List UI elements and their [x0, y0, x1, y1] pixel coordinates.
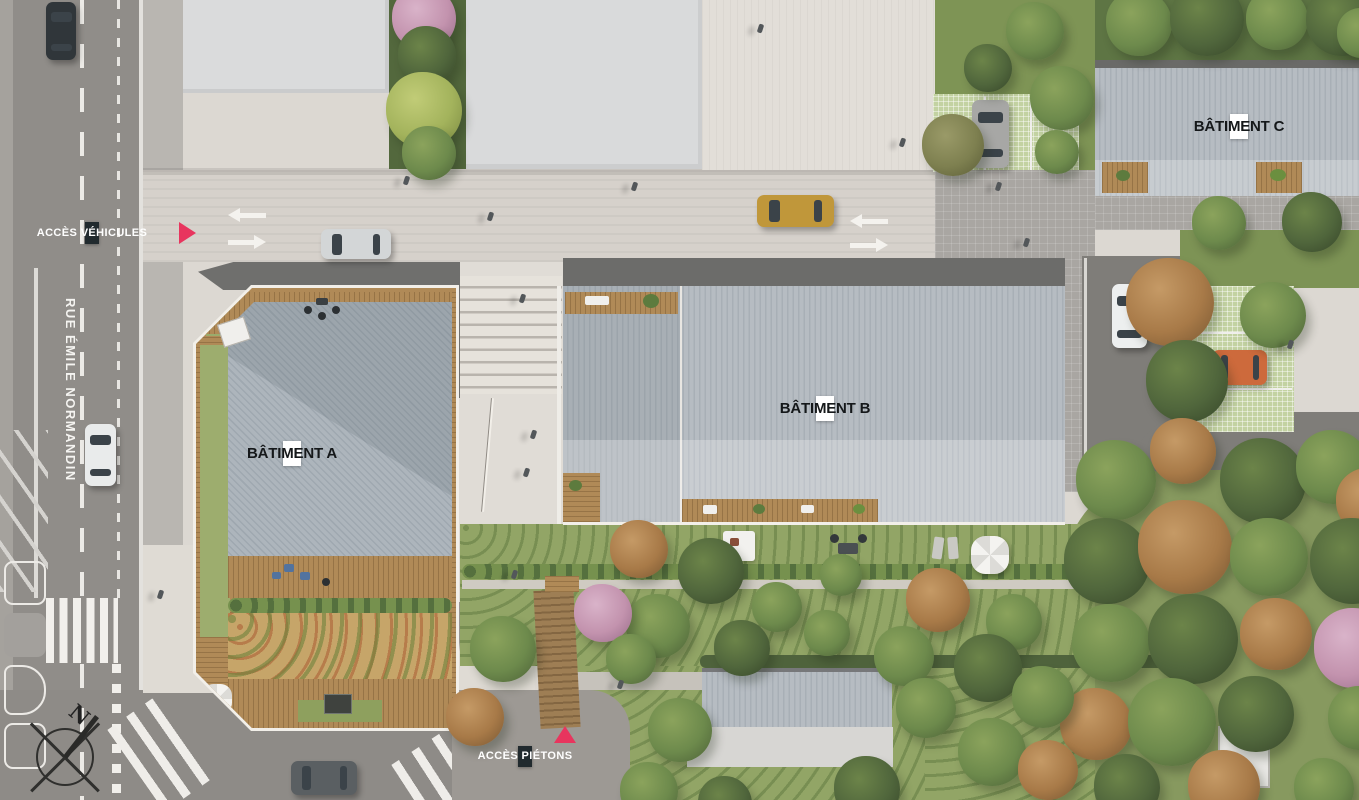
building-b-edge-line: [557, 286, 561, 524]
existing-building-nw: [183, 0, 389, 93]
terrace-plant: [853, 504, 865, 514]
access-pedestrians-label: ACCÈS PIÉTONS: [518, 746, 532, 767]
tree: [1240, 598, 1312, 670]
car-rear-window: [373, 234, 381, 255]
lane-arrow-left: [862, 219, 888, 224]
car: [757, 195, 834, 227]
lane-line-dashed-fine: [117, 0, 120, 598]
car-windshield: [978, 112, 1004, 123]
car-windshield: [332, 234, 342, 255]
tree: [1064, 518, 1150, 604]
tree: [922, 114, 984, 176]
tree: [1218, 676, 1294, 752]
building-b-label: BÂTIMENT B: [816, 396, 834, 421]
lane-arrow-right: [228, 240, 254, 245]
tree: [1072, 604, 1150, 682]
tree: [896, 678, 956, 738]
access-vehicles-arrow-icon: [179, 222, 196, 244]
tree: [874, 626, 934, 686]
tree: [1076, 440, 1156, 520]
parking-bay: [4, 561, 46, 605]
building-c-terrace-plant: [1270, 169, 1286, 181]
building-b-eave: [563, 258, 1065, 286]
tree: [648, 698, 712, 762]
building-a-label: BÂTIMENT A: [283, 441, 301, 466]
car-windshield: [302, 766, 311, 790]
tree: [820, 554, 862, 596]
curb-line-east: [1084, 258, 1087, 470]
tree: [906, 568, 970, 632]
tree: [678, 538, 744, 604]
boardwalk-landing: [545, 576, 579, 592]
compass: N: [0, 680, 130, 800]
tree: [574, 584, 632, 642]
car: [321, 229, 391, 259]
lane-arrow-left: [240, 213, 266, 218]
garden-chair: [858, 534, 867, 543]
terrace-deck-low: [228, 556, 452, 598]
terrace-lawn: [200, 345, 230, 637]
tree: [1128, 678, 1216, 766]
tree: [1006, 2, 1064, 60]
garden-table: [838, 543, 858, 554]
access-vehicles-label: ACCÈS VÉHICULES: [85, 222, 99, 244]
building-b-terrace: [565, 292, 678, 314]
garden-chair: [830, 534, 839, 543]
tree: [1012, 666, 1074, 728]
roof-chair: [332, 306, 340, 314]
car-rear-window: [51, 44, 72, 51]
building-a: [196, 288, 456, 728]
car-windshield: [90, 435, 112, 445]
terrace-hedge: [228, 598, 452, 613]
tree: [446, 688, 504, 746]
tree: [1146, 340, 1228, 422]
stairs-central: [460, 276, 562, 394]
tree: [1126, 258, 1214, 346]
access-vehicles-text: ACCÈS VÉHICULES: [37, 228, 148, 239]
terrace-lounger: [801, 505, 814, 513]
tree: [964, 44, 1012, 92]
tree: [1220, 438, 1306, 524]
tree: [1148, 594, 1238, 684]
deck-grill: [322, 578, 330, 586]
car: [46, 2, 76, 60]
deck-chair-blue: [300, 572, 310, 580]
building-b: [563, 258, 1065, 524]
parasol: [971, 536, 1009, 574]
building-b-text: BÂTIMENT B: [780, 401, 871, 416]
building-b-terrace: [563, 473, 600, 522]
building-c-eave: [1095, 60, 1359, 68]
tree: [958, 718, 1026, 786]
car-rear-window: [90, 469, 112, 476]
tree: [606, 634, 656, 684]
tree: [1282, 192, 1342, 252]
tree: [1138, 500, 1232, 594]
parking-bay: [4, 613, 46, 657]
car: [85, 424, 116, 486]
tree: [610, 520, 668, 578]
tree: [1150, 418, 1216, 484]
car-windshield: [51, 12, 72, 21]
building-a-text: BÂTIMENT A: [247, 446, 337, 461]
terrace-plant: [643, 294, 659, 308]
existing-building-n: [466, 0, 702, 169]
terrace-plant: [753, 504, 765, 514]
lane-arrow-right: [850, 243, 876, 248]
tree: [1230, 518, 1308, 596]
tree: [1240, 282, 1306, 348]
tree: [1192, 196, 1246, 250]
building-c-terrace-plant: [1116, 170, 1130, 181]
roof-chair: [318, 312, 326, 320]
lounger: [947, 537, 959, 560]
terrace-lounger: [703, 505, 717, 514]
terrace-plant: [569, 480, 582, 491]
crosswalk-left-road: [46, 598, 118, 663]
lane-line-dashed-long: [80, 0, 84, 598]
roof-chair: [304, 306, 312, 314]
building-c-label: BÂTIMENT C: [1230, 114, 1248, 139]
tree: [714, 620, 770, 676]
street-name-label: RUE ÉMILE NORMANDIN: [63, 298, 78, 518]
tree: [1035, 130, 1079, 174]
annex-building-roof: [702, 672, 892, 727]
tree: [1018, 740, 1078, 800]
car: [291, 761, 357, 795]
tree: [402, 126, 456, 180]
deck-chair-blue: [284, 564, 294, 572]
tree: [1030, 66, 1094, 130]
access-pedestrians-text: ACCÈS PIÉTONS: [478, 751, 573, 762]
car-rear-window: [814, 200, 822, 222]
car-rear-window: [340, 766, 347, 790]
building-c-text: BÂTIMENT C: [1194, 119, 1285, 134]
access-pedestrians-arrow-icon: [554, 726, 576, 743]
utility-box: [324, 694, 352, 714]
community-garden: [228, 613, 452, 679]
tree: [752, 582, 802, 632]
tree: [470, 616, 536, 682]
tree: [804, 610, 850, 656]
car-windshield: [769, 200, 780, 222]
car-rear-window: [1253, 355, 1259, 380]
deck-chair-blue: [272, 572, 281, 579]
roof-table: [316, 298, 328, 305]
site-plan: ACCÈS VÉHICULES ACCÈS PIÉTONS BÂTIMENT A…: [0, 0, 1359, 800]
terrace-lounger: [585, 296, 609, 305]
